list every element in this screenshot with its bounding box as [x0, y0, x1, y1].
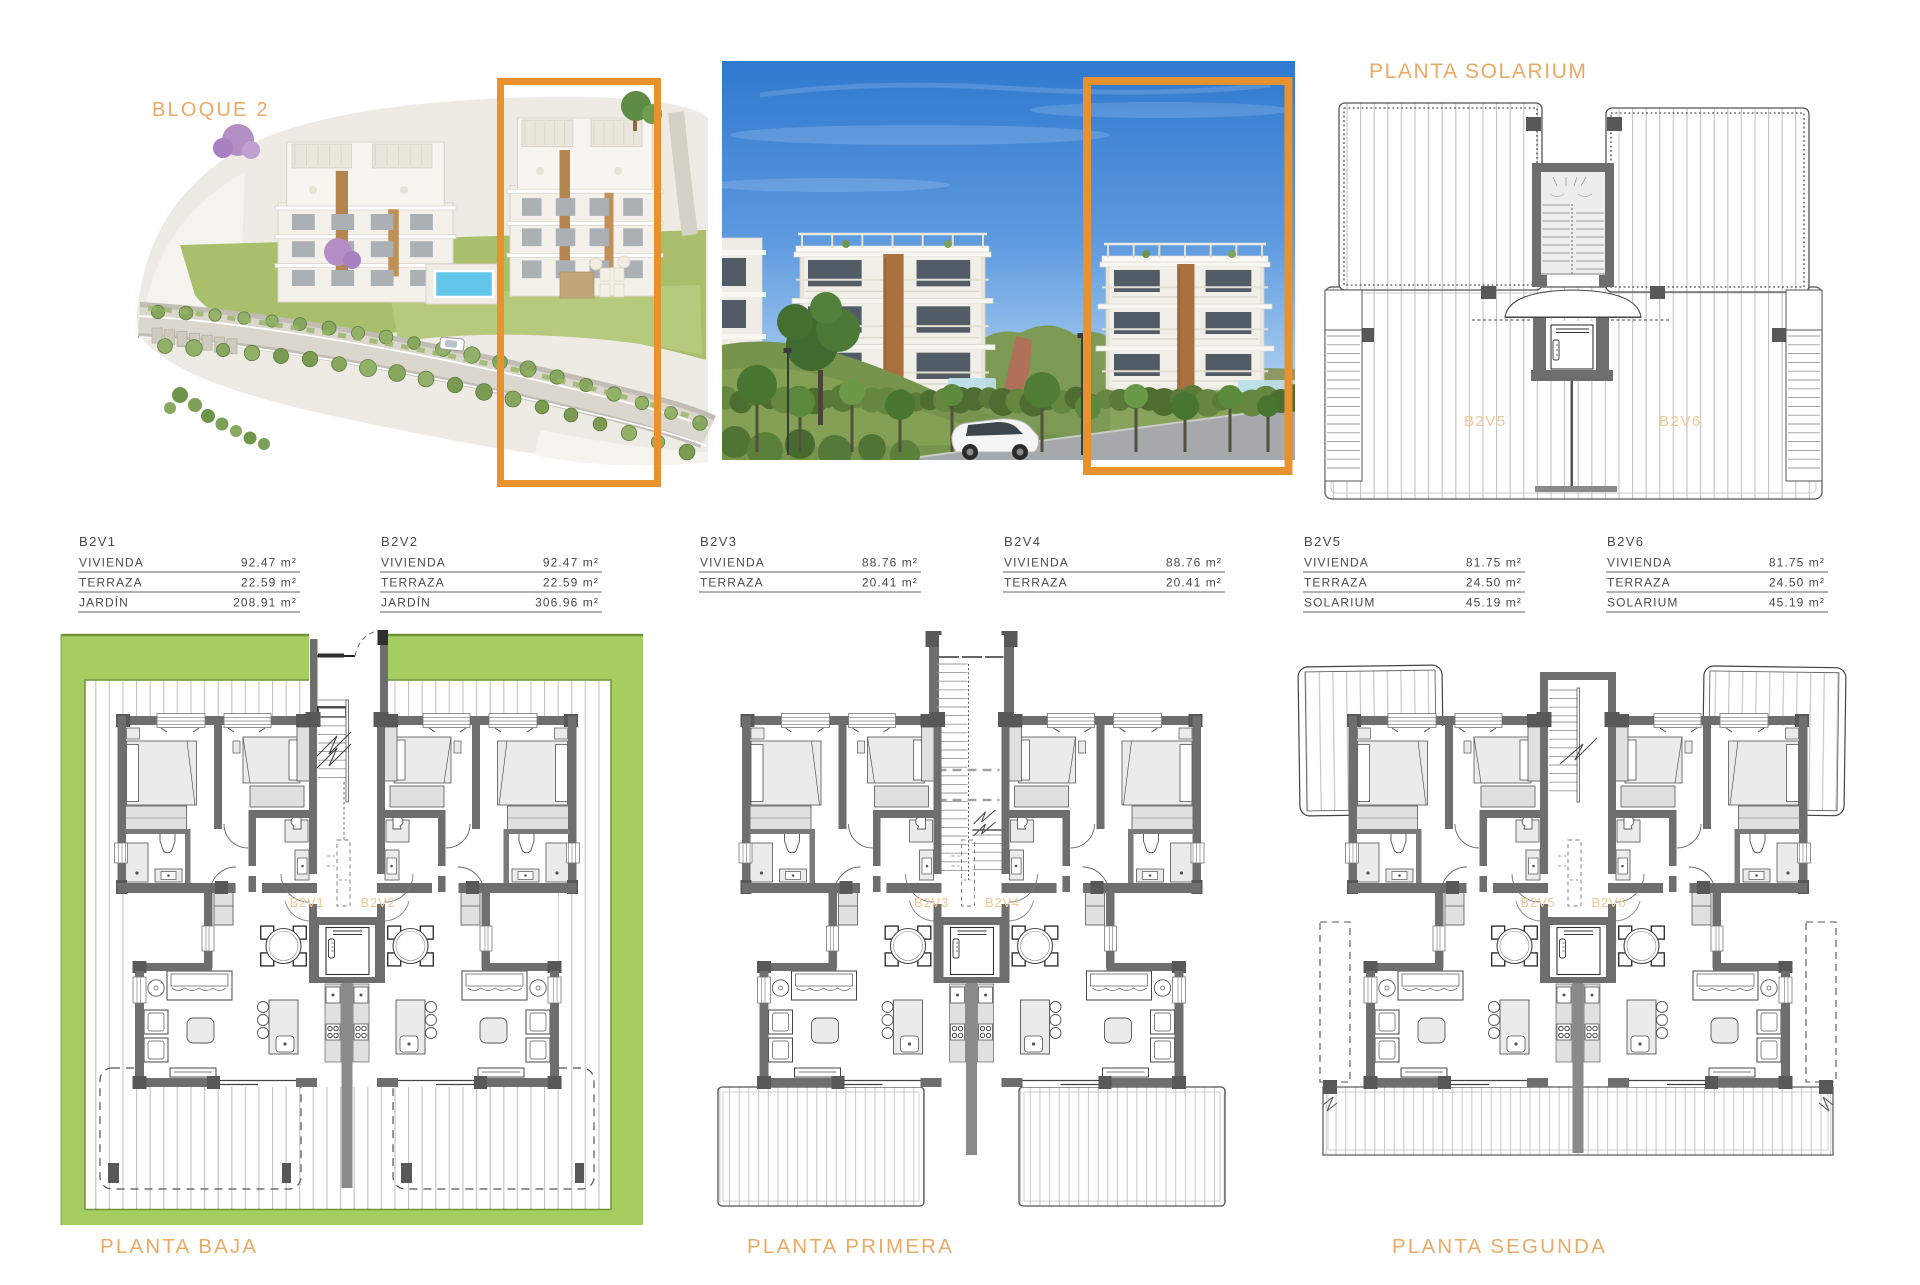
svg-text:24.50 m²: 24.50 m²	[1769, 576, 1825, 590]
svg-text:81.75 m²: 81.75 m²	[1466, 556, 1522, 570]
svg-text:PLANTA SOLARIUM: PLANTA SOLARIUM	[1369, 60, 1588, 83]
svg-text:PLANTA SEGUNDA: PLANTA SEGUNDA	[1392, 1235, 1607, 1258]
svg-text:VIVIENDA: VIVIENDA	[700, 556, 765, 570]
svg-text:24.50 m²: 24.50 m²	[1466, 576, 1522, 590]
svg-text:SOLARIUM: SOLARIUM	[1607, 596, 1678, 610]
svg-text:B2V4: B2V4	[1004, 534, 1041, 549]
svg-text:PLANTA BAJA: PLANTA BAJA	[100, 1235, 258, 1258]
svg-text:B2V3: B2V3	[700, 534, 737, 549]
svg-text:B2V6: B2V6	[1591, 895, 1626, 910]
svg-text:20.41 m²: 20.41 m²	[862, 576, 918, 590]
svg-text:88.76 m²: 88.76 m²	[862, 556, 918, 570]
svg-text:TERRAZA: TERRAZA	[1304, 576, 1368, 590]
svg-text:PLANTA PRIMERA: PLANTA PRIMERA	[747, 1235, 954, 1258]
svg-text:B2V1: B2V1	[289, 895, 324, 910]
svg-text:TERRAZA: TERRAZA	[700, 576, 764, 590]
svg-text:TERRAZA: TERRAZA	[1607, 576, 1671, 590]
svg-text:20.41 m²: 20.41 m²	[1166, 576, 1222, 590]
svg-text:B2V6: B2V6	[1659, 413, 1702, 430]
svg-text:81.75 m²: 81.75 m²	[1769, 556, 1825, 570]
svg-text:88.76 m²: 88.76 m²	[1166, 556, 1222, 570]
svg-text:B2V4: B2V4	[985, 895, 1020, 910]
svg-text:B2V6: B2V6	[1607, 534, 1644, 549]
svg-text:TERRAZA: TERRAZA	[381, 576, 445, 590]
svg-text:22.59 m²: 22.59 m²	[241, 576, 297, 590]
svg-text:BLOQUE 2: BLOQUE 2	[152, 99, 270, 121]
svg-text:JARDÍN: JARDÍN	[381, 595, 431, 610]
svg-text:VIVIENDA: VIVIENDA	[1004, 556, 1069, 570]
svg-text:22.59 m²: 22.59 m²	[543, 576, 599, 590]
svg-text:B2V2: B2V2	[360, 895, 395, 910]
svg-text:92.47 m²: 92.47 m²	[543, 556, 599, 570]
svg-text:VIVIENDA: VIVIENDA	[381, 556, 446, 570]
svg-text:208.91 m²: 208.91 m²	[233, 596, 297, 610]
svg-text:VIVIENDA: VIVIENDA	[79, 556, 144, 570]
svg-text:306.96 m²: 306.96 m²	[535, 596, 599, 610]
svg-text:B2V5: B2V5	[1520, 895, 1555, 910]
svg-text:45.19 m²: 45.19 m²	[1466, 596, 1522, 610]
svg-text:B2V5: B2V5	[1464, 413, 1507, 430]
svg-text:45.19 m²: 45.19 m²	[1769, 596, 1825, 610]
svg-text:JARDÍN: JARDÍN	[79, 595, 129, 610]
svg-text:B2V5: B2V5	[1304, 534, 1341, 549]
svg-text:B2V3: B2V3	[914, 895, 949, 910]
svg-text:B2V2: B2V2	[381, 534, 418, 549]
svg-text:TERRAZA: TERRAZA	[79, 576, 143, 590]
svg-text:VIVIENDA: VIVIENDA	[1304, 556, 1369, 570]
svg-text:TERRAZA: TERRAZA	[1004, 576, 1068, 590]
svg-text:SOLARIUM: SOLARIUM	[1304, 596, 1375, 610]
svg-text:VIVIENDA: VIVIENDA	[1607, 556, 1672, 570]
svg-text:92.47 m²: 92.47 m²	[241, 556, 297, 570]
svg-text:B2V1: B2V1	[79, 534, 116, 549]
